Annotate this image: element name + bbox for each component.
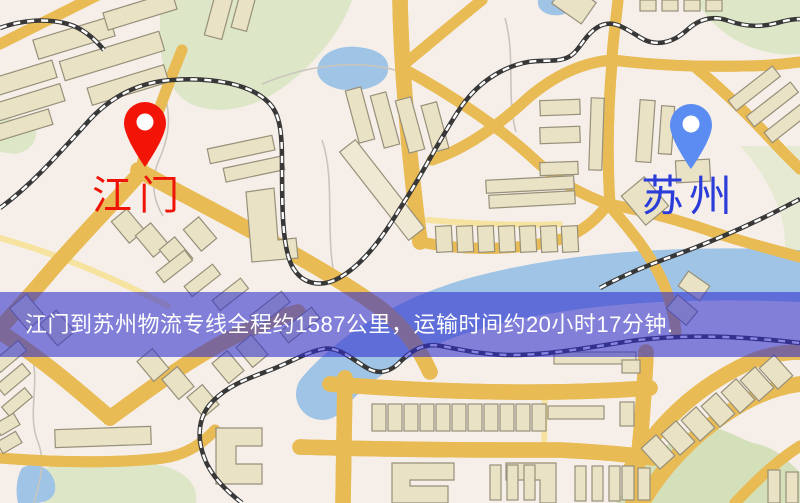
map-canvas: #roads-wide{stroke:#e8bb55;stroke-width:… — [0, 0, 800, 503]
destination-pin-hole — [683, 116, 700, 133]
destination-city-label: 苏州 — [641, 176, 737, 219]
route-info-text: 江门到苏州物流专线全程约1587公里，运输时间约20小时17分钟. — [25, 312, 674, 337]
origin-pin-icon — [121, 100, 169, 169]
origin-city-label: 江门 — [92, 176, 186, 216]
origin-pin-hole — [137, 114, 154, 131]
destination-pin-icon — [667, 102, 715, 171]
map-screenshot: #roads-wide{stroke:#e8bb55;stroke-width:… — [0, 0, 800, 503]
route-info-banner: 江门到苏州物流专线全程约1587公里，运输时间约20小时17分钟. — [0, 292, 800, 357]
